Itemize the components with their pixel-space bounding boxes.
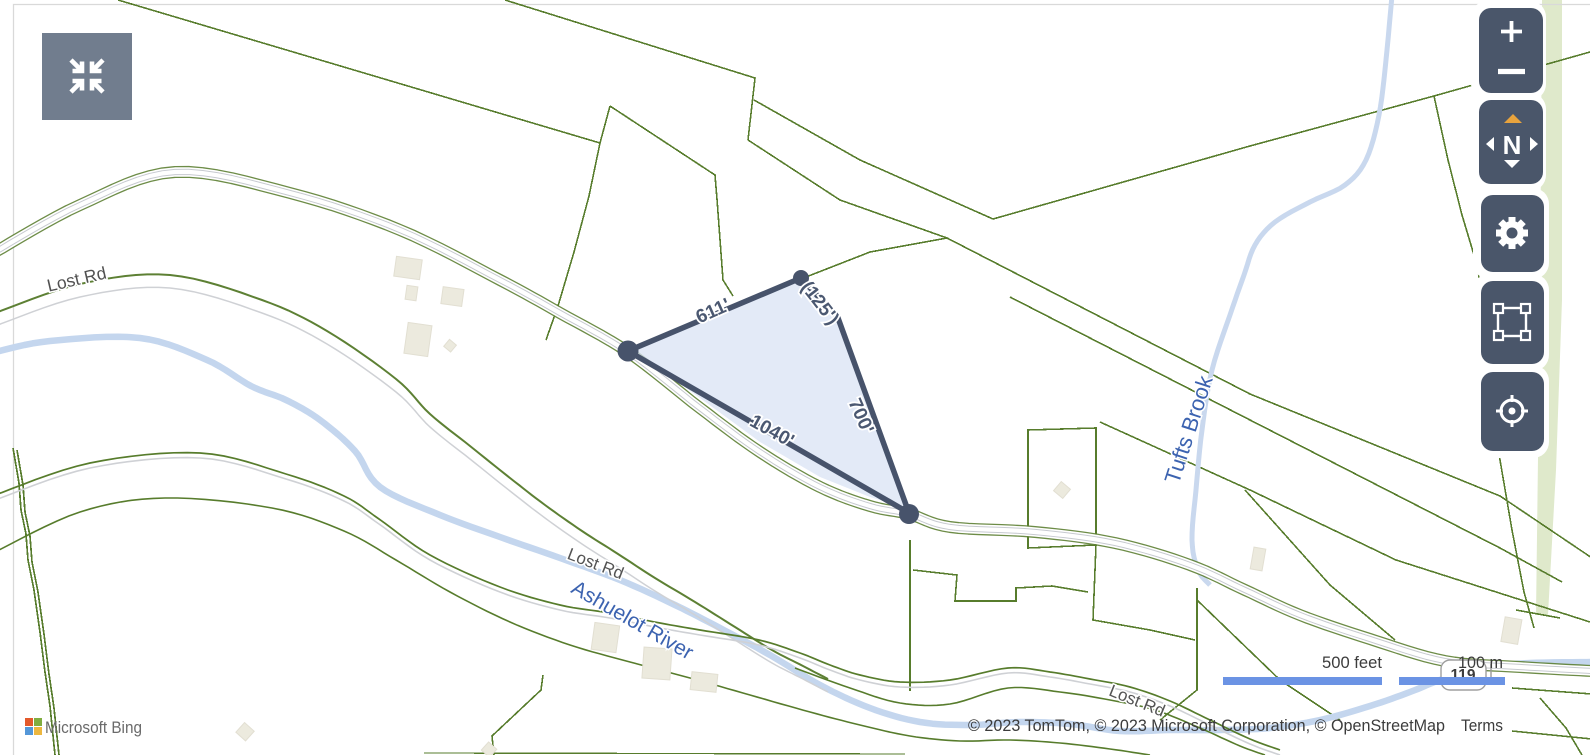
svg-text:100 m: 100 m xyxy=(1458,654,1503,672)
svg-text:500 feet: 500 feet xyxy=(1322,654,1382,672)
svg-text:Terms: Terms xyxy=(1461,716,1503,735)
svg-text:Microsoft Bing: Microsoft Bing xyxy=(45,719,142,737)
svg-text:© 2023 TomTom, © 2023 Microsof: © 2023 TomTom, © 2023 Microsoft Corporat… xyxy=(968,716,1445,735)
svg-text:N: N xyxy=(1503,130,1522,160)
